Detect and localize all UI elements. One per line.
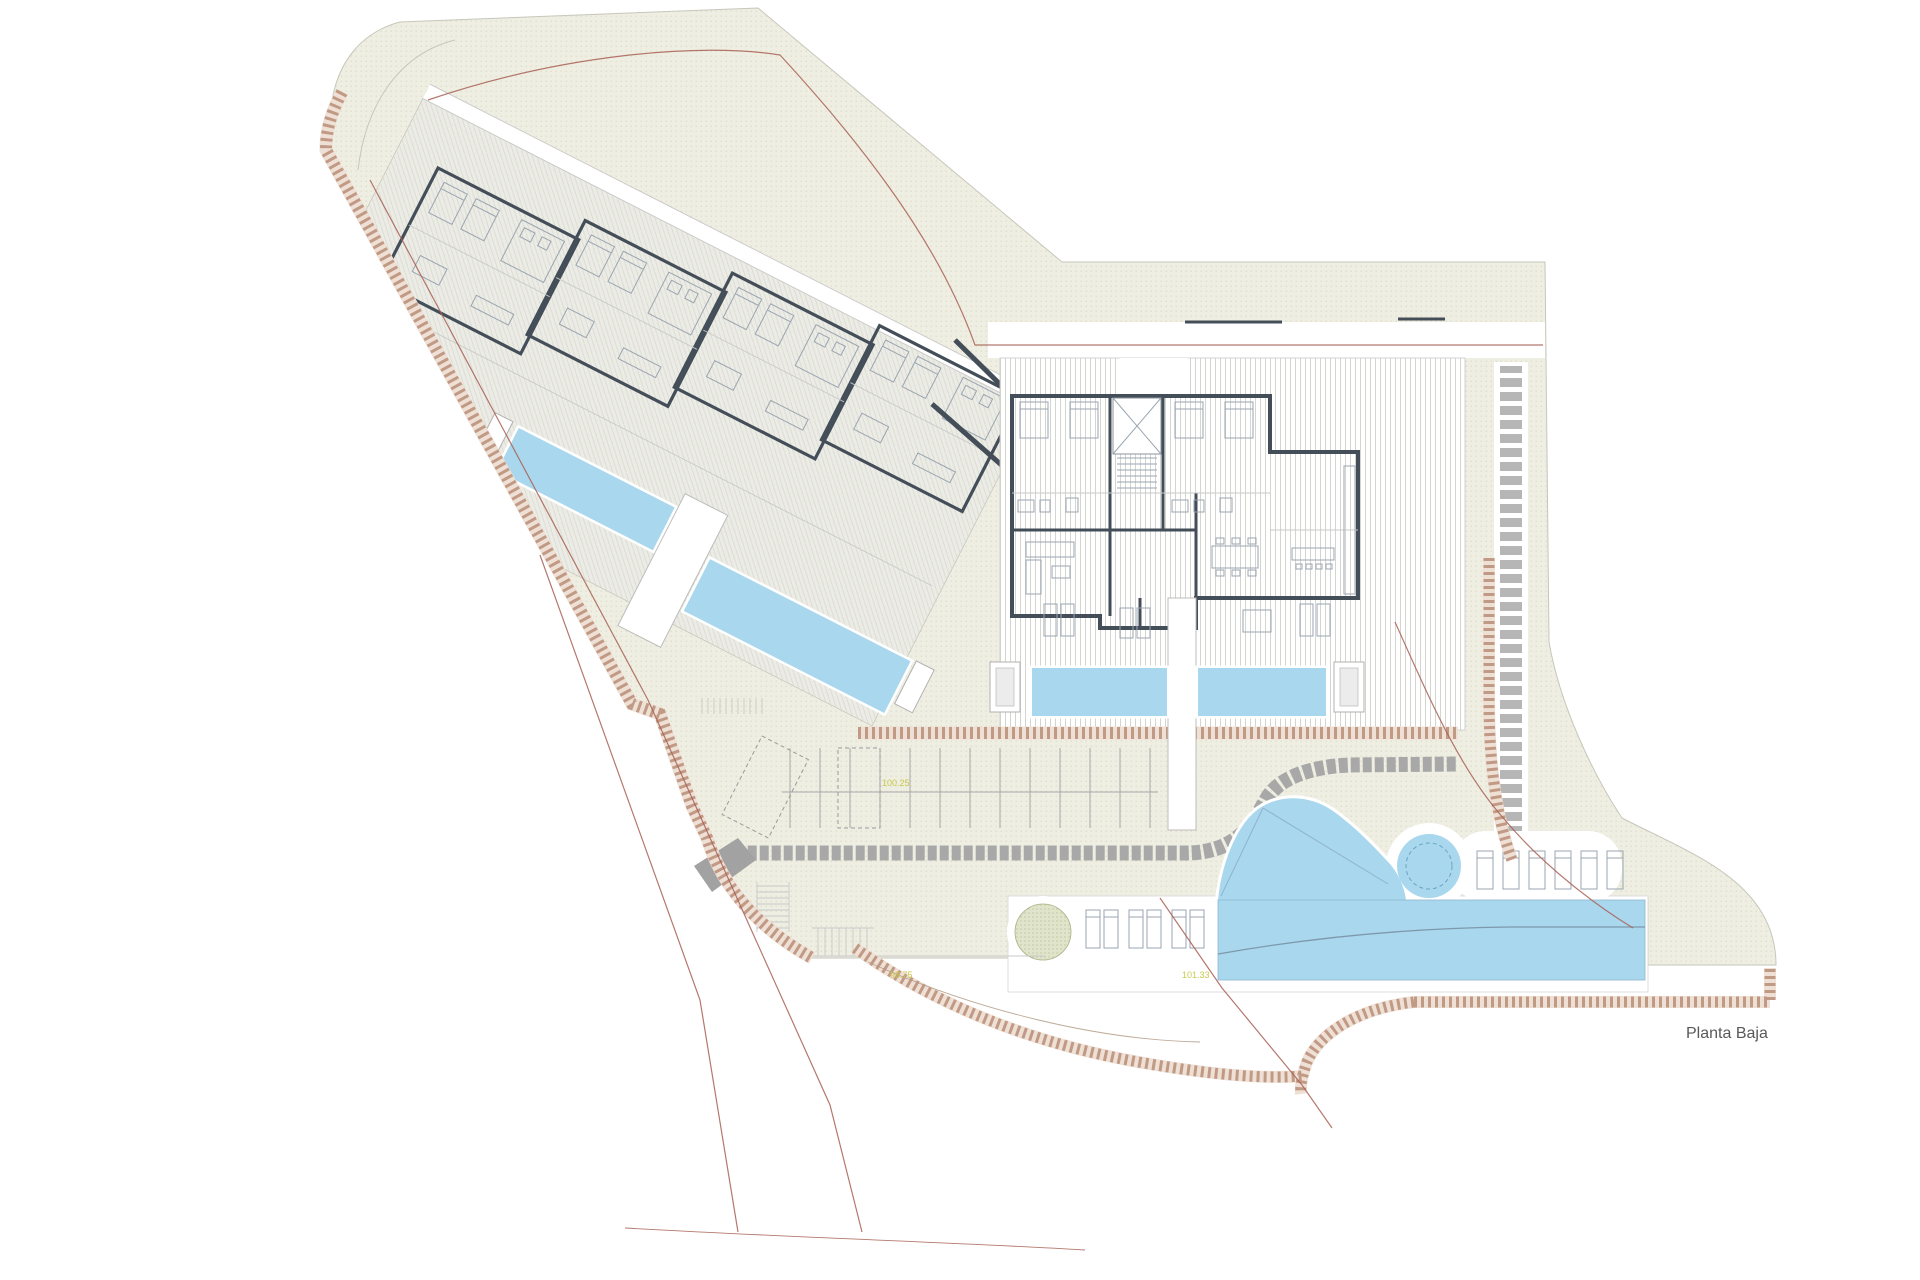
- floor-plan-page: 100.25 98.75 101.33 Planta Baja: [0, 0, 1920, 1280]
- plan-title: Planta Baja: [1686, 1025, 1768, 1042]
- elevation-label-parking: 100.25: [882, 778, 910, 788]
- stepping-stones-path: [1500, 366, 1522, 854]
- spa-pool: [1397, 834, 1461, 898]
- boundary-line-south: [625, 1228, 1085, 1250]
- planter-right-inner: [1340, 668, 1358, 706]
- planter-left-inner: [996, 668, 1014, 706]
- main-pool: [1218, 900, 1645, 980]
- tree-circle-texture: [1015, 904, 1071, 960]
- site-plan-canvas: 100.25 98.75 101.33 Planta Baja: [0, 0, 1920, 1280]
- access-road-strip: [988, 322, 1545, 358]
- right-jetty-walkway: [1168, 598, 1196, 830]
- right-pool-1: [1032, 668, 1167, 716]
- elevation-label-pool: 101.33: [1182, 970, 1210, 980]
- right-deck-entrance-gap: [1120, 358, 1188, 396]
- elevation-label-path: 98.75: [890, 970, 913, 980]
- right-pool-2: [1198, 668, 1326, 716]
